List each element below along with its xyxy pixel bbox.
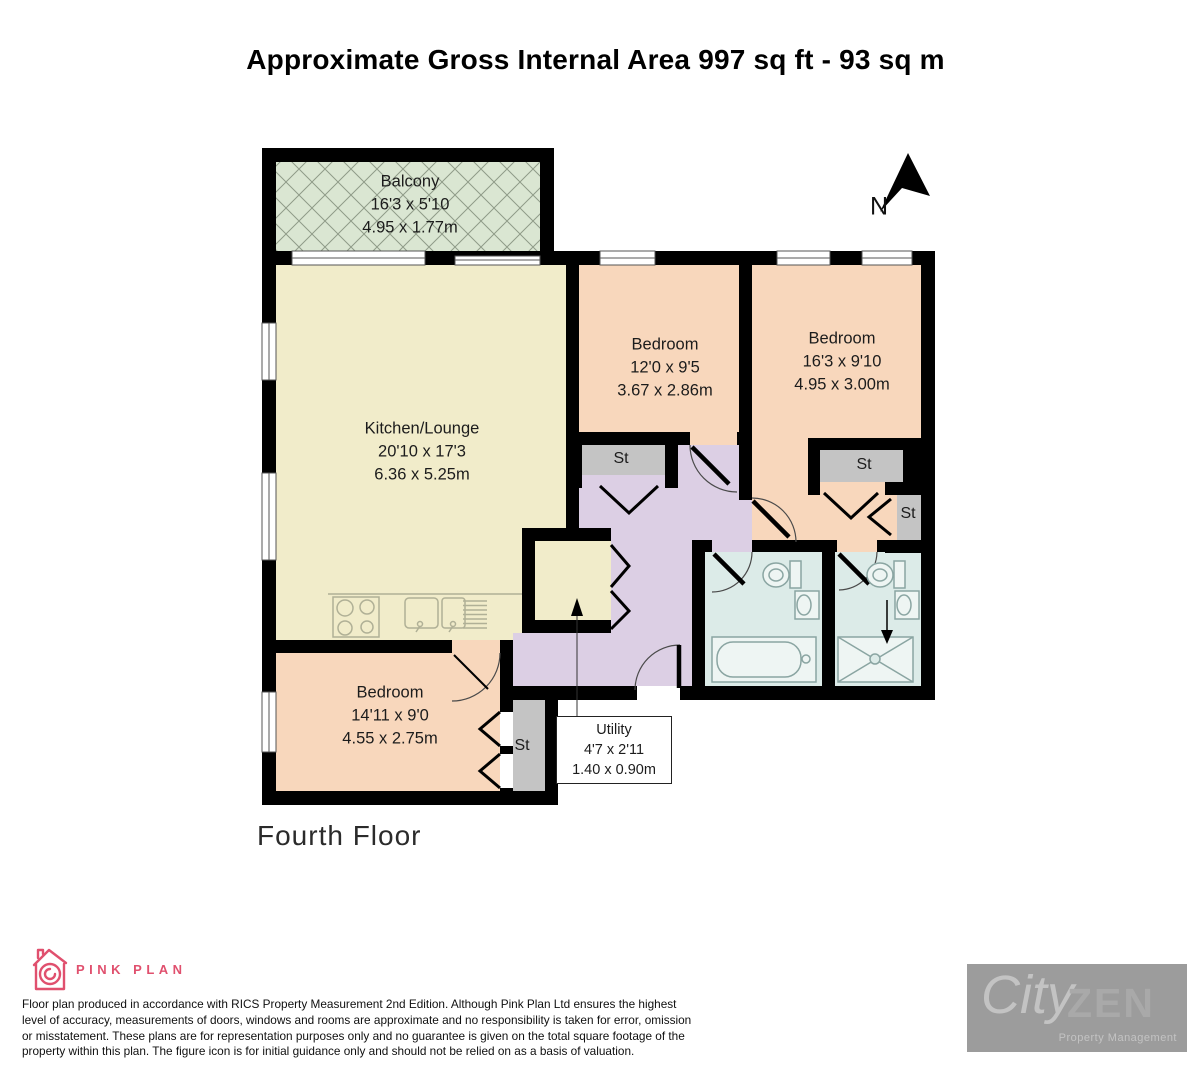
bedroom-bottom-label: Bedroom 14'11 x 9'0 4.55 x 2.75m <box>342 682 437 751</box>
room-dims-ft: 4'7 x 2'11 <box>559 740 669 760</box>
room-name: Bedroom <box>794 328 889 351</box>
room-dims-ft: 12'0 x 9'5 <box>617 357 712 380</box>
agency-word-city: City <box>981 964 1074 1026</box>
room-name: Bedroom <box>342 682 437 705</box>
room-name: Balcony <box>362 171 457 194</box>
bedroom-middle-label: Bedroom 12'0 x 9'5 3.67 x 2.86m <box>617 334 712 403</box>
utility-label: Utility 4'7 x 2'11 1.40 x 0.90m <box>556 716 672 784</box>
agency-tagline: Property Management <box>1059 1032 1177 1044</box>
pink-plan-house-icon <box>30 944 70 994</box>
room-dims-m: 4.95 x 3.00m <box>794 374 889 397</box>
drainer <box>463 601 487 628</box>
kitchen-lounge-label: Kitchen/Lounge 20'10 x 17'3 6.36 x 5.25m <box>365 418 480 487</box>
room-name: Bedroom <box>617 334 712 357</box>
room-dims-m: 6.36 x 5.25m <box>365 464 480 487</box>
disclaimer-text: Floor plan produced in accordance with R… <box>22 997 698 1060</box>
room-dims-ft: 16'3 x 9'10 <box>794 351 889 374</box>
room-name: Kitchen/Lounge <box>365 418 480 441</box>
storage-label: St <box>856 456 871 474</box>
agency-word-zen: ZEN <box>1067 980 1155 1027</box>
room-name: Utility <box>559 720 669 740</box>
room-dims-ft: 20'10 x 17'3 <box>365 441 480 464</box>
room-dims-m: 4.55 x 2.75m <box>342 728 437 751</box>
brand-name: PINK PLAN <box>76 962 187 977</box>
storage-label: St <box>514 737 529 755</box>
balcony-label: Balcony 16'3 x 5'10 4.95 x 1.77m <box>362 171 457 240</box>
entrance-opening <box>637 686 680 700</box>
room-dims-ft: 16'3 x 5'10 <box>362 194 457 217</box>
floor-label: Fourth Floor <box>257 820 422 852</box>
brand-logo <box>30 944 70 992</box>
room-dims-m: 4.95 x 1.77m <box>362 217 457 240</box>
storage-label: St <box>613 450 628 468</box>
agency-logo: City ZEN Property Management <box>967 964 1187 1052</box>
room-dims-ft: 14'11 x 9'0 <box>342 705 437 728</box>
room-dims-m: 1.40 x 0.90m <box>559 760 669 780</box>
floor-plan-drawing <box>0 0 1191 1080</box>
bedroom-right-label: Bedroom 16'3 x 9'10 4.95 x 3.00m <box>794 328 889 397</box>
floor-plan-page: Approximate Gross Internal Area 997 sq f… <box>0 0 1191 1080</box>
storage-label: St <box>900 505 915 523</box>
north-label: N <box>870 193 888 222</box>
room-dims-m: 3.67 x 2.86m <box>617 380 712 403</box>
